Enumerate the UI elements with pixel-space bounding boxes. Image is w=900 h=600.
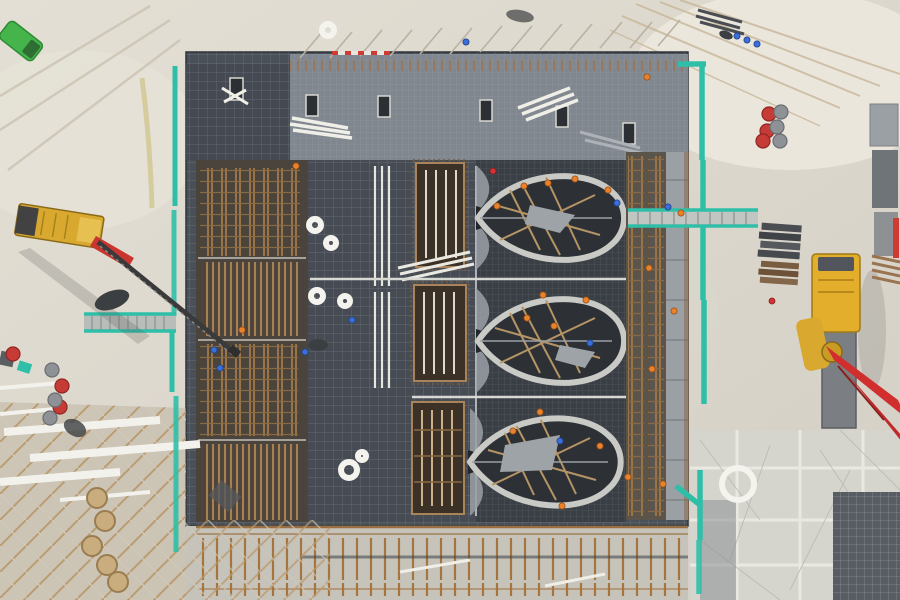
right-walkway-bridge — [628, 209, 758, 227]
windshield — [818, 257, 854, 271]
aerial-construction-photo — [0, 0, 900, 600]
scaffold-lattice-2 — [186, 520, 330, 600]
edge-form-board — [684, 152, 689, 520]
rebar-mat-grid — [833, 492, 900, 600]
column-cage — [202, 262, 298, 336]
column-cage — [202, 444, 298, 520]
scene-svg — [0, 0, 900, 600]
foundation-pit — [186, 20, 689, 526]
top-rebar-comb — [290, 60, 686, 71]
central-slab — [308, 160, 476, 522]
formwork-box-2 — [411, 282, 469, 384]
red-stripe — [893, 218, 899, 258]
concrete-pad — [690, 430, 900, 600]
formwork-box-3 — [412, 402, 464, 514]
column-cage — [200, 344, 298, 436]
column-cage — [200, 168, 300, 256]
truck-shadow — [858, 270, 886, 390]
left-column-strip — [196, 160, 308, 522]
rebar-mat-light — [700, 500, 736, 600]
right-edge-strip — [626, 152, 689, 520]
